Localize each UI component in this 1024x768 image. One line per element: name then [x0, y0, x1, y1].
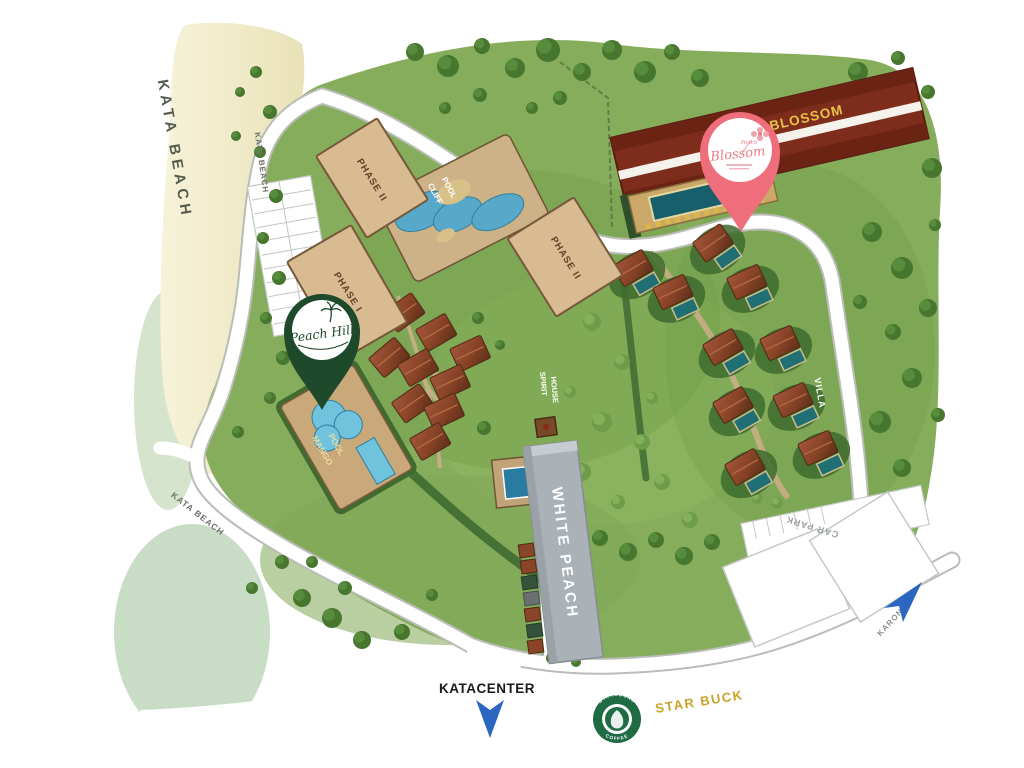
- map-canvas: PEACH BLOSSOM KATA BEACH KAT: [0, 0, 1024, 768]
- resort-site-map: PEACH BLOSSOM KATA BEACH KAT: [0, 0, 1024, 768]
- starbucks-logo-icon: STARBUCKS COFFEE: [593, 692, 641, 743]
- katacenter-label: KATACENTER: [439, 681, 535, 696]
- spirit-house: [535, 417, 557, 438]
